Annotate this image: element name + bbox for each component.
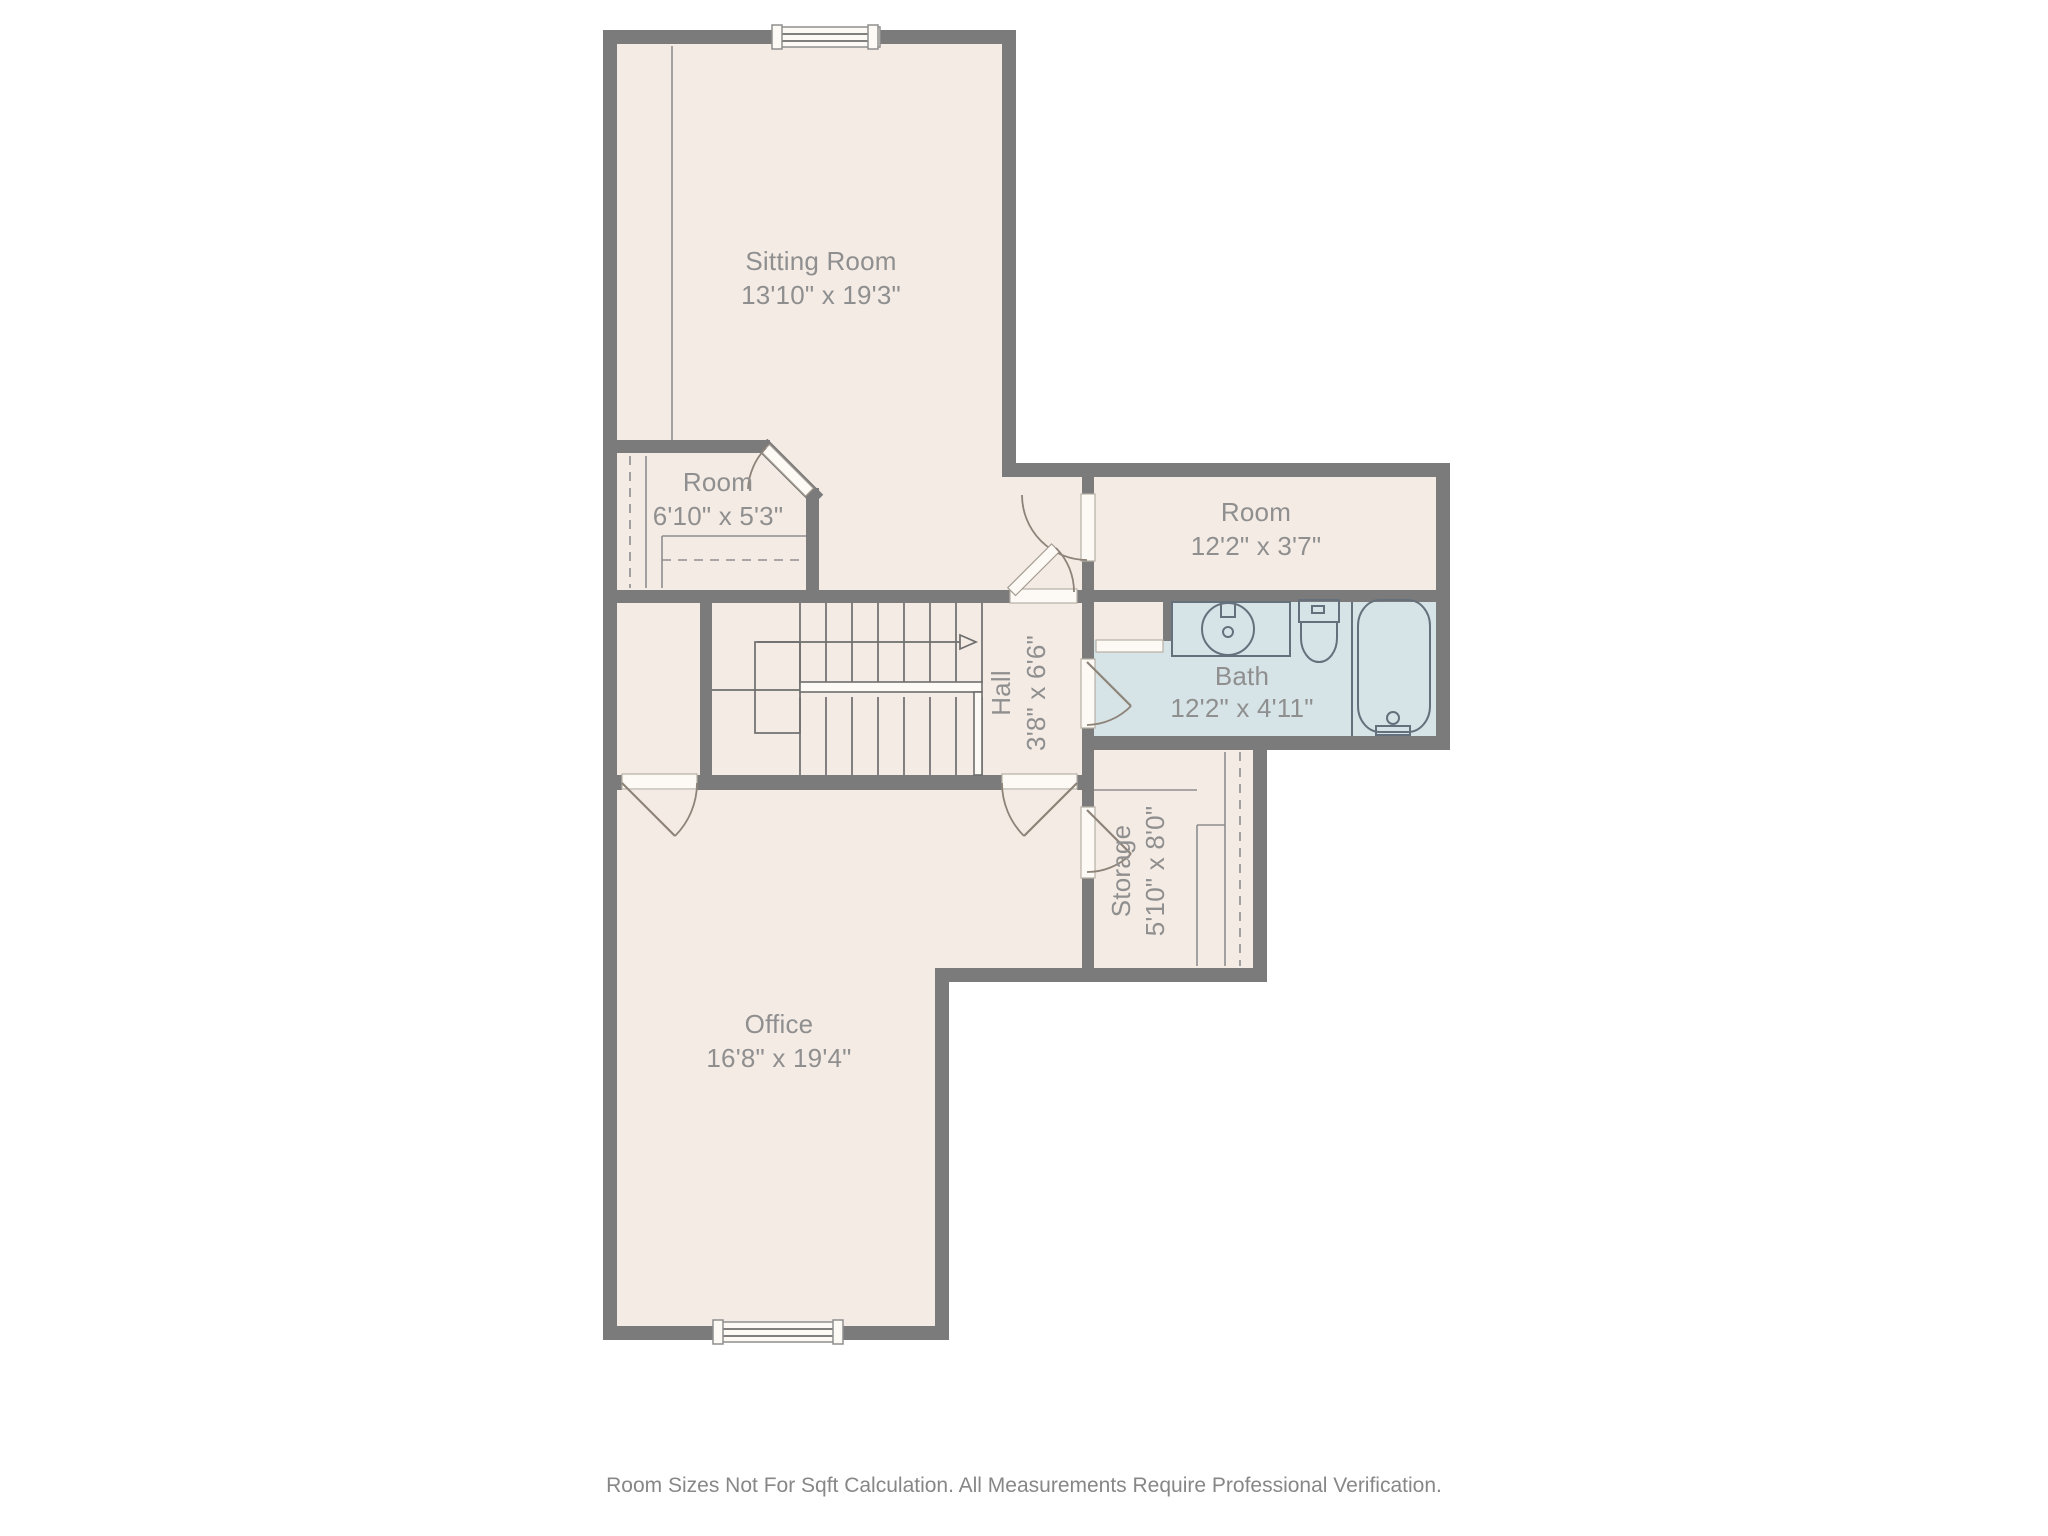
small-room-name: Room [683,467,753,497]
stair-handrail-vertical [974,692,982,775]
wall-hall-top-a [603,590,1010,603]
wall-small-room-top [603,440,770,453]
wall-vestibule-right-a [1082,477,1094,495]
window-frame [775,27,880,47]
sitting-room-dims: 13'10" x 19'3" [741,280,901,310]
floor-plan: Sitting Room 13'10" x 19'3" Room 6'10" x… [0,0,2048,1536]
wall-closet-stairs [700,598,712,775]
wall-storage-left-b [1082,878,1094,968]
right-room-name: Room [1221,497,1291,527]
window-cap [713,1320,723,1344]
office-dims: 16'8" x 19'4" [706,1043,851,1073]
window-cap [833,1320,843,1344]
bath-name: Bath [1215,661,1269,691]
storage-dims: 5'10" x 8'0" [1140,806,1170,937]
threshold-right-room [1081,494,1095,561]
bath-niche-floor [1094,602,1163,640]
vestibule-floor [1002,477,1082,590]
threshold-hall-office [1002,774,1077,789]
wall-storage-right [1253,736,1267,982]
window-frame [716,1322,842,1342]
office-name: Office [745,1009,814,1039]
window-sitting-room [772,25,880,49]
window-cap [868,25,878,49]
stair-handrail-horizontal [800,682,982,692]
disclaimer-text: Room Sizes Not For Sqft Calculation. All… [606,1474,1442,1497]
sitting-room-name: Sitting Room [745,246,896,276]
small-room-dims: 6'10" x 5'3" [653,501,784,531]
wall-small-room-right [806,488,819,590]
window-office [713,1320,843,1344]
hall-dims: 3'8" x 6'6" [1021,635,1051,751]
wall-office-right [935,968,949,1340]
wall-wing-right [1436,463,1450,750]
office-extension-floor [935,790,1082,968]
wall-hall-bottom-b [697,775,1002,790]
wall-bath-left-a [1082,602,1094,660]
right-room-dims: 12'2" x 3'7" [1191,531,1322,561]
window-cap [772,25,782,49]
wall-hall-bottom-a [603,775,622,790]
wall-storage-left-a [1082,750,1094,808]
wall-sitting-right [1002,30,1016,477]
wall-storage-bottom [935,968,1267,982]
threshold-closet [622,774,697,789]
cased-opening-bath-niche [1096,640,1163,652]
wall-left [603,30,617,1340]
wall-wing-top [1002,463,1450,477]
hall-name: Hall [986,670,1016,716]
storage-name: Storage [1106,825,1136,917]
bath-dims: 12'2" x 4'11" [1170,693,1313,723]
threshold-storage [1081,807,1095,878]
